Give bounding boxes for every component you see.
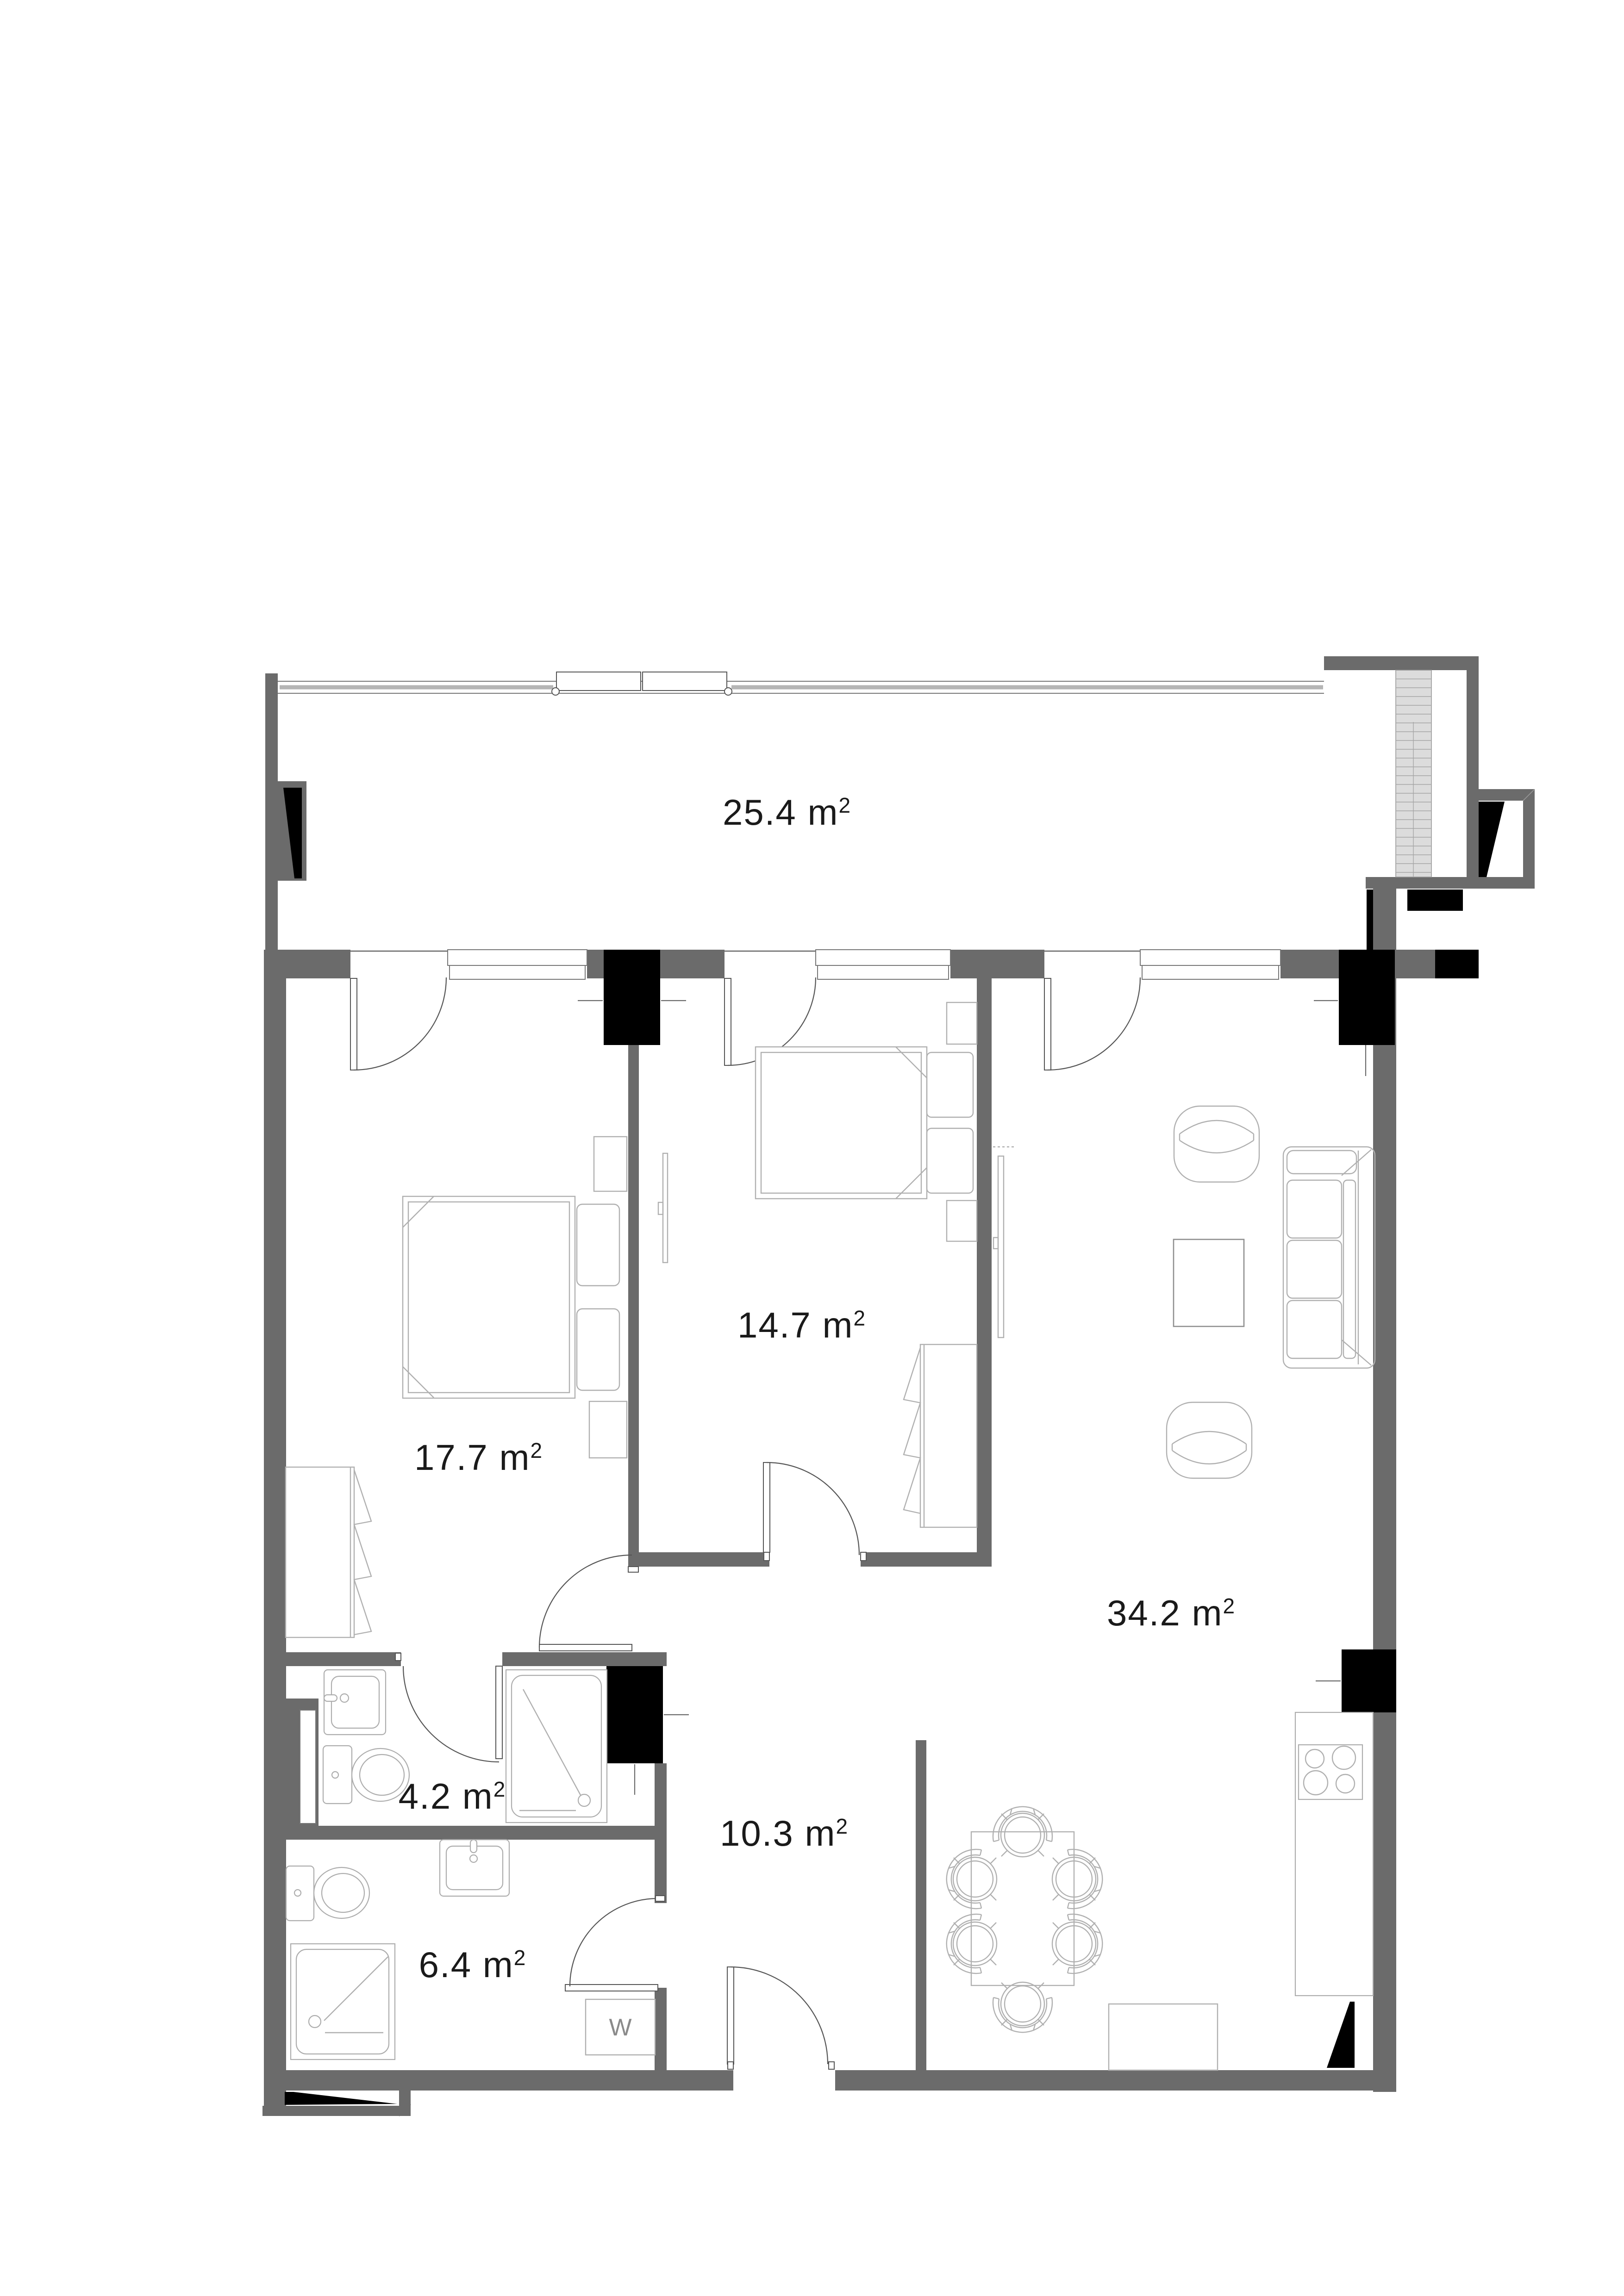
bed-double [403,1196,575,1398]
door-bedroom1 [539,1555,638,1651]
column-top-right [1435,950,1479,978]
balcony-right-wall [1467,670,1479,878]
bed-double [756,1047,927,1199]
door-bathroom1 [395,1653,502,1762]
wardrobe [286,1467,371,1637]
tv-bedroom2 [658,1153,668,1263]
shower [506,1670,607,1823]
room-area-label-hallway: 10.3 m2 [720,1813,849,1854]
wall-bedroom1-bedroom2 [628,1045,639,1567]
wall-bedroom2-living [977,950,992,1567]
room-area-label-bathroom-2: 6.4 m2 [419,1944,527,1985]
column-bath-junction [606,1666,663,1763]
bedroom2-bottom-wall [639,1552,769,1567]
pillow [927,1128,973,1193]
sink [440,1840,509,1896]
toilet [323,1746,409,1804]
door-balcony-living [1044,977,1140,1070]
dining-chair [1052,1914,1102,1973]
nightstand [947,1002,977,1044]
sideboard [1109,2004,1218,2070]
left-wall [264,950,286,2116]
balcony-left-wall [265,673,278,951]
bedroom1-furniture [286,1137,627,1637]
extension-top-wall [1479,789,1535,801]
column-top-2 [1339,950,1395,1045]
dining-chair [993,1982,1052,2032]
bottom-left-band [262,2106,411,2116]
shower [291,1944,395,2060]
shaft-hatch [1396,670,1431,877]
railing-pivot [725,688,732,695]
living-room-furniture [993,1106,1375,1478]
left-shaft-window [300,1710,316,1823]
bathroom1-bottom-wall [286,1826,667,1840]
bathroom1-top-wall [286,1652,401,1666]
washing-machine: W [586,1999,655,2055]
bathroom2-right-wall [655,1763,667,1903]
dining-chair [1052,1849,1102,1909]
pillow [927,1052,973,1117]
tv-living [993,1147,1015,1338]
pillow [577,1309,619,1390]
nightstand [594,1137,627,1191]
door-balcony-bedroom1 [350,977,446,1070]
balcony-structure [265,656,1535,951]
pillow [577,1204,619,1286]
window-bedroom1 [448,950,587,979]
washing-machine-label: W [609,2014,631,2041]
kitchen-dining [947,1712,1373,2070]
door-bedroom2 [763,1462,866,1561]
floor-plan-canvas: W 25.4 m2 17.7 m2 14.7 m2 34.2 m2 4.2 m2… [0,0,1624,2296]
bottom-wall-segment [835,2070,1396,2091]
nightstand [589,1401,627,1458]
sofa [1283,1147,1375,1368]
bedroom2-furniture [658,1002,977,1527]
railing-glass-panel [556,672,641,691]
room-area-label-bedroom-1: 17.7 m2 [414,1437,543,1478]
corner-wedge-bottom-right [1327,2002,1355,2068]
balcony-top-right-wall [1324,656,1479,670]
windows [448,950,1280,979]
room-area-label-balcony: 25.4 m2 [723,792,851,833]
room-area-label-bedroom-2: 14.7 m2 [737,1305,866,1345]
upper-column-b [1407,890,1463,911]
room-area-label-living-room: 34.2 m2 [1107,1593,1236,1633]
bottom-wall-segment [285,2070,733,2091]
wardrobe [904,1344,977,1527]
bathroom1-top-wall [502,1652,667,1666]
sink [324,1670,386,1735]
armchair [1174,1106,1259,1182]
upper-bottom-wall [1366,877,1535,889]
toilet [286,1866,369,1921]
coffee-table [1174,1239,1244,1326]
extension-column [1479,802,1505,883]
right-wall [1373,889,1396,2092]
column-top-1 [604,950,660,1045]
room-area-label-bathroom-1: 4.2 m2 [399,1776,506,1817]
window-bedroom2 [816,950,950,979]
bedroom2-bottom-wall [861,1552,991,1567]
nightstand [947,1201,977,1241]
door-bathroom2 [565,1896,665,1991]
balcony-railing [278,672,1324,695]
extension-right-wall [1523,801,1535,888]
window-living [1140,950,1280,979]
doors [350,977,1140,2069]
column-mid-right [1342,1649,1396,1712]
door-entry [727,1967,834,2069]
bottom-left-corner-block [399,2091,411,2116]
corner-wedge-bottom-left [285,2092,397,2105]
hallway-right-wall [916,1740,926,2070]
top-wall-segment [950,950,1044,978]
stove [1299,1745,1362,1799]
railing-glass-panel [643,672,727,691]
bathroom2-right-wall [655,1988,667,2070]
armchair [1167,1402,1252,1478]
railing-pivot [552,688,559,695]
